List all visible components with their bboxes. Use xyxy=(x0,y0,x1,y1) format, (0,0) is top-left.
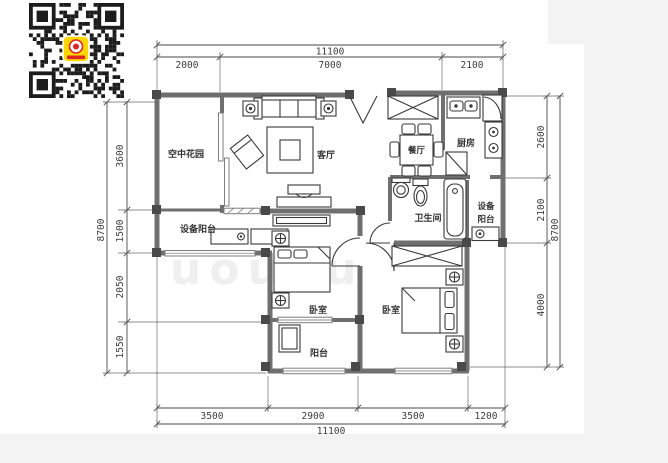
dim-left-1: 3600 xyxy=(115,144,126,167)
kitchen-corner-unit xyxy=(483,95,502,121)
coffee-table xyxy=(267,127,313,173)
qr-logo xyxy=(63,36,89,62)
toilet xyxy=(413,179,428,206)
dim-right-2: 2100 xyxy=(536,198,547,221)
dim-right-total: 8700 xyxy=(550,218,561,241)
side-plant-right xyxy=(321,101,336,116)
dim-right-1: 2600 xyxy=(536,125,547,148)
dim-left-4: 1550 xyxy=(115,335,126,358)
dim-bottom-4: 1200 xyxy=(475,411,498,422)
label-balcony: 阳台 xyxy=(310,347,328,359)
side-plant-left xyxy=(243,101,258,116)
dim-top-2: 7000 xyxy=(319,60,342,71)
bathtub xyxy=(444,179,466,239)
washbasin xyxy=(392,178,410,198)
label-bedroom-left: 卧室 xyxy=(309,304,327,316)
corner-background-patch xyxy=(548,0,668,44)
window-sill-hatch xyxy=(224,208,260,214)
dim-left-2: 1500 xyxy=(115,219,126,242)
bed-left xyxy=(274,247,330,292)
dim-left-total: 8700 xyxy=(96,218,107,241)
bedroom-right-wardrobe xyxy=(392,246,462,266)
nightstand xyxy=(272,231,289,246)
kitchen-sink xyxy=(447,97,480,118)
nightstand xyxy=(446,336,463,352)
entry-shoe-cabinet xyxy=(388,96,438,119)
dim-top-1: 2000 xyxy=(176,60,199,71)
dim-bottom-2: 2900 xyxy=(302,411,325,422)
balcony-furniture xyxy=(279,325,300,352)
nightstand xyxy=(272,293,289,308)
label-dining-room: 餐厅 xyxy=(407,145,426,156)
equip-balcony-right-furniture xyxy=(472,227,499,241)
label-kitchen: 厨房 xyxy=(457,137,475,149)
sofa xyxy=(254,96,324,119)
fridge xyxy=(446,152,467,175)
qr-code xyxy=(24,0,130,102)
label-equip-balcony-right-2: 阳台 xyxy=(477,214,495,225)
dim-bottom-total: 11100 xyxy=(317,426,346,437)
label-sky-garden: 空中花园 xyxy=(168,148,204,160)
label-bathroom: 卫生间 xyxy=(414,212,441,224)
dim-top-3: 2100 xyxy=(461,60,484,71)
bedroom-left-wardrobe xyxy=(273,215,330,226)
bed-right xyxy=(402,288,457,333)
dim-bottom-1: 3500 xyxy=(201,411,224,422)
dim-right-3: 4000 xyxy=(536,293,547,316)
label-bedroom-right: 卧室 xyxy=(382,304,400,316)
nightstand xyxy=(446,269,463,285)
label-equip-balcony-right-1: 设备 xyxy=(477,201,495,212)
dim-top-total: 11100 xyxy=(316,47,345,58)
stove xyxy=(485,122,502,158)
dim-left-3: 2050 xyxy=(115,275,126,298)
label-living-room: 客厅 xyxy=(316,149,335,161)
dim-bottom-3: 3500 xyxy=(402,411,425,422)
label-equip-balcony-left: 设备阳台 xyxy=(180,223,216,235)
floorplan-page: uouou 11100 2000 7000 2100 3500 2900 350… xyxy=(0,0,668,463)
